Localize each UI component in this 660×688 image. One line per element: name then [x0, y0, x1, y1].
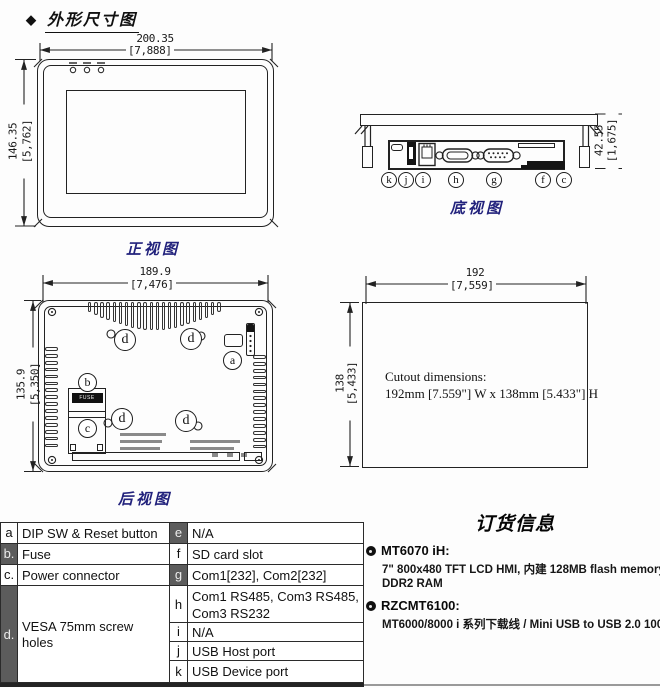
vent-slot: [137, 302, 140, 329]
vent-slot: [150, 302, 153, 330]
vent-slot: [88, 302, 91, 312]
front-screen: [66, 90, 246, 194]
led-label-mark: [97, 62, 105, 64]
terminal-notch: [70, 444, 76, 451]
bottom-view-caption: 底视图: [450, 197, 504, 218]
rear-label-a: a: [223, 351, 242, 370]
ordering-title: 订货信息: [375, 509, 655, 536]
rear-label-d4: d: [175, 410, 197, 432]
part-label: USB Device port: [188, 661, 363, 682]
vent-slot: [162, 302, 165, 330]
vent-slot: [156, 302, 159, 330]
part-label: Fuse: [18, 544, 169, 565]
parts-table-left: a DIP SW & Reset button b. Fuse c. Power…: [0, 522, 170, 683]
vent-rib: [253, 376, 266, 380]
rear-label-b: b: [78, 373, 97, 392]
vent-rib: [253, 355, 266, 359]
vent-rib: [45, 444, 58, 448]
parts-table-right: e N/A f SD card slot g Com1[232], Com2[2…: [170, 522, 364, 683]
cutout-width-in: [7,559]: [448, 279, 496, 292]
order-item-desc: DDR2 RAM: [382, 578, 443, 590]
vent-slot: [100, 302, 103, 318]
led-label-mark: [83, 62, 91, 64]
part-key: a: [1, 523, 18, 544]
vent-slot: [131, 302, 134, 328]
port-label-f: f: [535, 172, 551, 188]
part-label: Com1[232], Com2[232]: [188, 565, 363, 586]
part-label: VESA 75mm screw holes: [18, 586, 169, 682]
cutout-width-mm: 192: [430, 266, 520, 279]
vent-rib: [45, 361, 58, 365]
right-mount-foot: [579, 146, 590, 168]
port-label-j: j: [398, 172, 414, 188]
vent-rib: [45, 395, 58, 399]
power-connector-c: [527, 161, 565, 169]
rear-height-mm: 135.9: [15, 350, 28, 420]
cutout-note-line1: Cutout dimensions:: [385, 369, 486, 385]
vent-rib: [253, 383, 266, 387]
vent-slot: [119, 302, 122, 324]
cutout-height-in: [5,433]: [346, 347, 359, 421]
part-label: N/A: [188, 623, 363, 642]
rear-bottom-rail-end: [244, 452, 262, 461]
bottom-bezel-bar: [360, 114, 598, 126]
mini-usb-port-k: [391, 144, 403, 151]
fuse-box-line: [68, 417, 106, 418]
sd-card-slot-f: [518, 143, 555, 148]
vent-slot: [143, 302, 146, 330]
port-label-k: k: [381, 172, 397, 188]
rear-label-d3: d: [111, 408, 133, 430]
vent-rib: [45, 409, 58, 413]
power-connector-step: [521, 165, 529, 169]
order-item-name: RZCMT6100:: [381, 598, 460, 613]
vent-slot: [94, 302, 97, 315]
vent-slot: [168, 302, 171, 329]
left-side-ribs: [45, 347, 58, 451]
bottom-height-in: [1,675]: [606, 104, 619, 178]
part-key: i: [170, 623, 188, 642]
vent-rib: [45, 382, 58, 386]
rear-label-d2: d: [180, 328, 202, 350]
left-mount-foot: [362, 146, 373, 168]
part-label: Com1 RS485, Com3 RS485, Com3 RS232: [188, 586, 363, 623]
vent-slot: [199, 302, 202, 320]
dip-switch-cap: [247, 324, 254, 332]
reset-button: [224, 334, 243, 347]
front-view-caption: 正视图: [126, 238, 180, 259]
table-bottom-rule: [0, 683, 364, 687]
vent-rib: [45, 437, 58, 441]
rear-label-d1: d: [114, 329, 136, 351]
part-label: DIP SW & Reset button: [18, 523, 169, 544]
vent-rib: [45, 423, 58, 427]
front-height-mm: 146.35: [7, 107, 20, 177]
port-label-g: g: [486, 172, 502, 188]
cutout-rect: [362, 302, 588, 468]
cutout-note-line2: 192mm [7.559"] W x 138mm [5.433"] H: [385, 386, 598, 402]
vent-slot: [106, 302, 109, 320]
part-key: b.: [1, 544, 18, 565]
port-label-h: h: [448, 172, 464, 188]
vent-slot: [113, 302, 116, 322]
vent-slot: [174, 302, 177, 328]
vent-rib: [45, 354, 58, 358]
vent-rib: [253, 403, 266, 407]
fuse-band-label: FUSE: [72, 393, 103, 403]
vent-rib: [253, 431, 266, 435]
vent-rib: [253, 369, 266, 373]
part-key: c.: [1, 565, 18, 586]
port-label-i: i: [415, 172, 431, 188]
vent-rib: [253, 438, 266, 442]
vent-rib: [253, 362, 266, 366]
vent-rib: [253, 390, 266, 394]
vent-slot: [193, 302, 196, 322]
part-key: j: [170, 642, 188, 661]
order-bullet-icon: [366, 601, 376, 611]
vent-rib: [45, 416, 58, 420]
vent-rib: [253, 417, 266, 421]
order-bullet-icon: [366, 546, 376, 556]
part-label: N/A: [188, 523, 363, 544]
vent-slot: [211, 302, 214, 315]
datasheet-page: ◆外形尺寸图: [0, 0, 660, 688]
part-key: k: [170, 661, 188, 682]
vent-rib: [253, 396, 266, 400]
vent-rib: [45, 430, 58, 434]
part-label: USB Host port: [188, 642, 363, 661]
part-label: SD card slot: [188, 544, 363, 565]
vent-slot: [217, 302, 220, 312]
usb-host-port-j: [407, 142, 416, 165]
order-item-desc: MT6000/8000 i 系列下载线 / Mini USB to USB 2.…: [382, 616, 660, 632]
right-side-ribs: [253, 355, 266, 453]
port-label-c: c: [556, 172, 572, 188]
part-key: h: [170, 586, 188, 623]
vent-rib: [45, 388, 58, 392]
rear-bottom-rail: [72, 452, 240, 461]
rear-width-mm: 189.9: [110, 265, 200, 278]
vent-rib: [253, 410, 266, 414]
page-bottom-rule: [364, 684, 660, 686]
vent-slot: [186, 302, 189, 324]
rear-width-in: [7,476]: [128, 278, 176, 291]
front-width-in: [7,888]: [126, 44, 174, 57]
vent-slot: [180, 302, 183, 326]
fuse-box-line: [68, 411, 106, 412]
part-key: d.: [1, 586, 18, 682]
bottom-height-mm: 42.55: [593, 106, 606, 176]
part-label: Power connector: [18, 565, 169, 586]
order-item-desc: 7" 800x480 TFT LCD HMI, 内建 128MB flash m…: [382, 561, 660, 577]
front-height-in: [5,762]: [21, 105, 34, 179]
vent-rib: [253, 424, 266, 428]
vent-slot: [125, 302, 128, 326]
rear-label-c: c: [78, 419, 97, 438]
part-key: f: [170, 544, 188, 565]
order-item-name: MT6070 iH:: [381, 543, 450, 558]
terminal-notch: [97, 444, 103, 451]
rear-view-caption: 后视图: [118, 488, 172, 509]
vent-rib: [45, 347, 58, 351]
vent-rib: [45, 375, 58, 379]
part-key: e: [170, 523, 188, 544]
vent-rib: [45, 402, 58, 406]
led-label-mark: [69, 62, 77, 64]
vent-slot: [205, 302, 208, 318]
vent-rib: [45, 368, 58, 372]
part-key: g: [170, 565, 188, 586]
vent-rib: [253, 445, 266, 449]
top-vent-slots: [88, 302, 224, 334]
usb-port-slot: [409, 147, 413, 159]
